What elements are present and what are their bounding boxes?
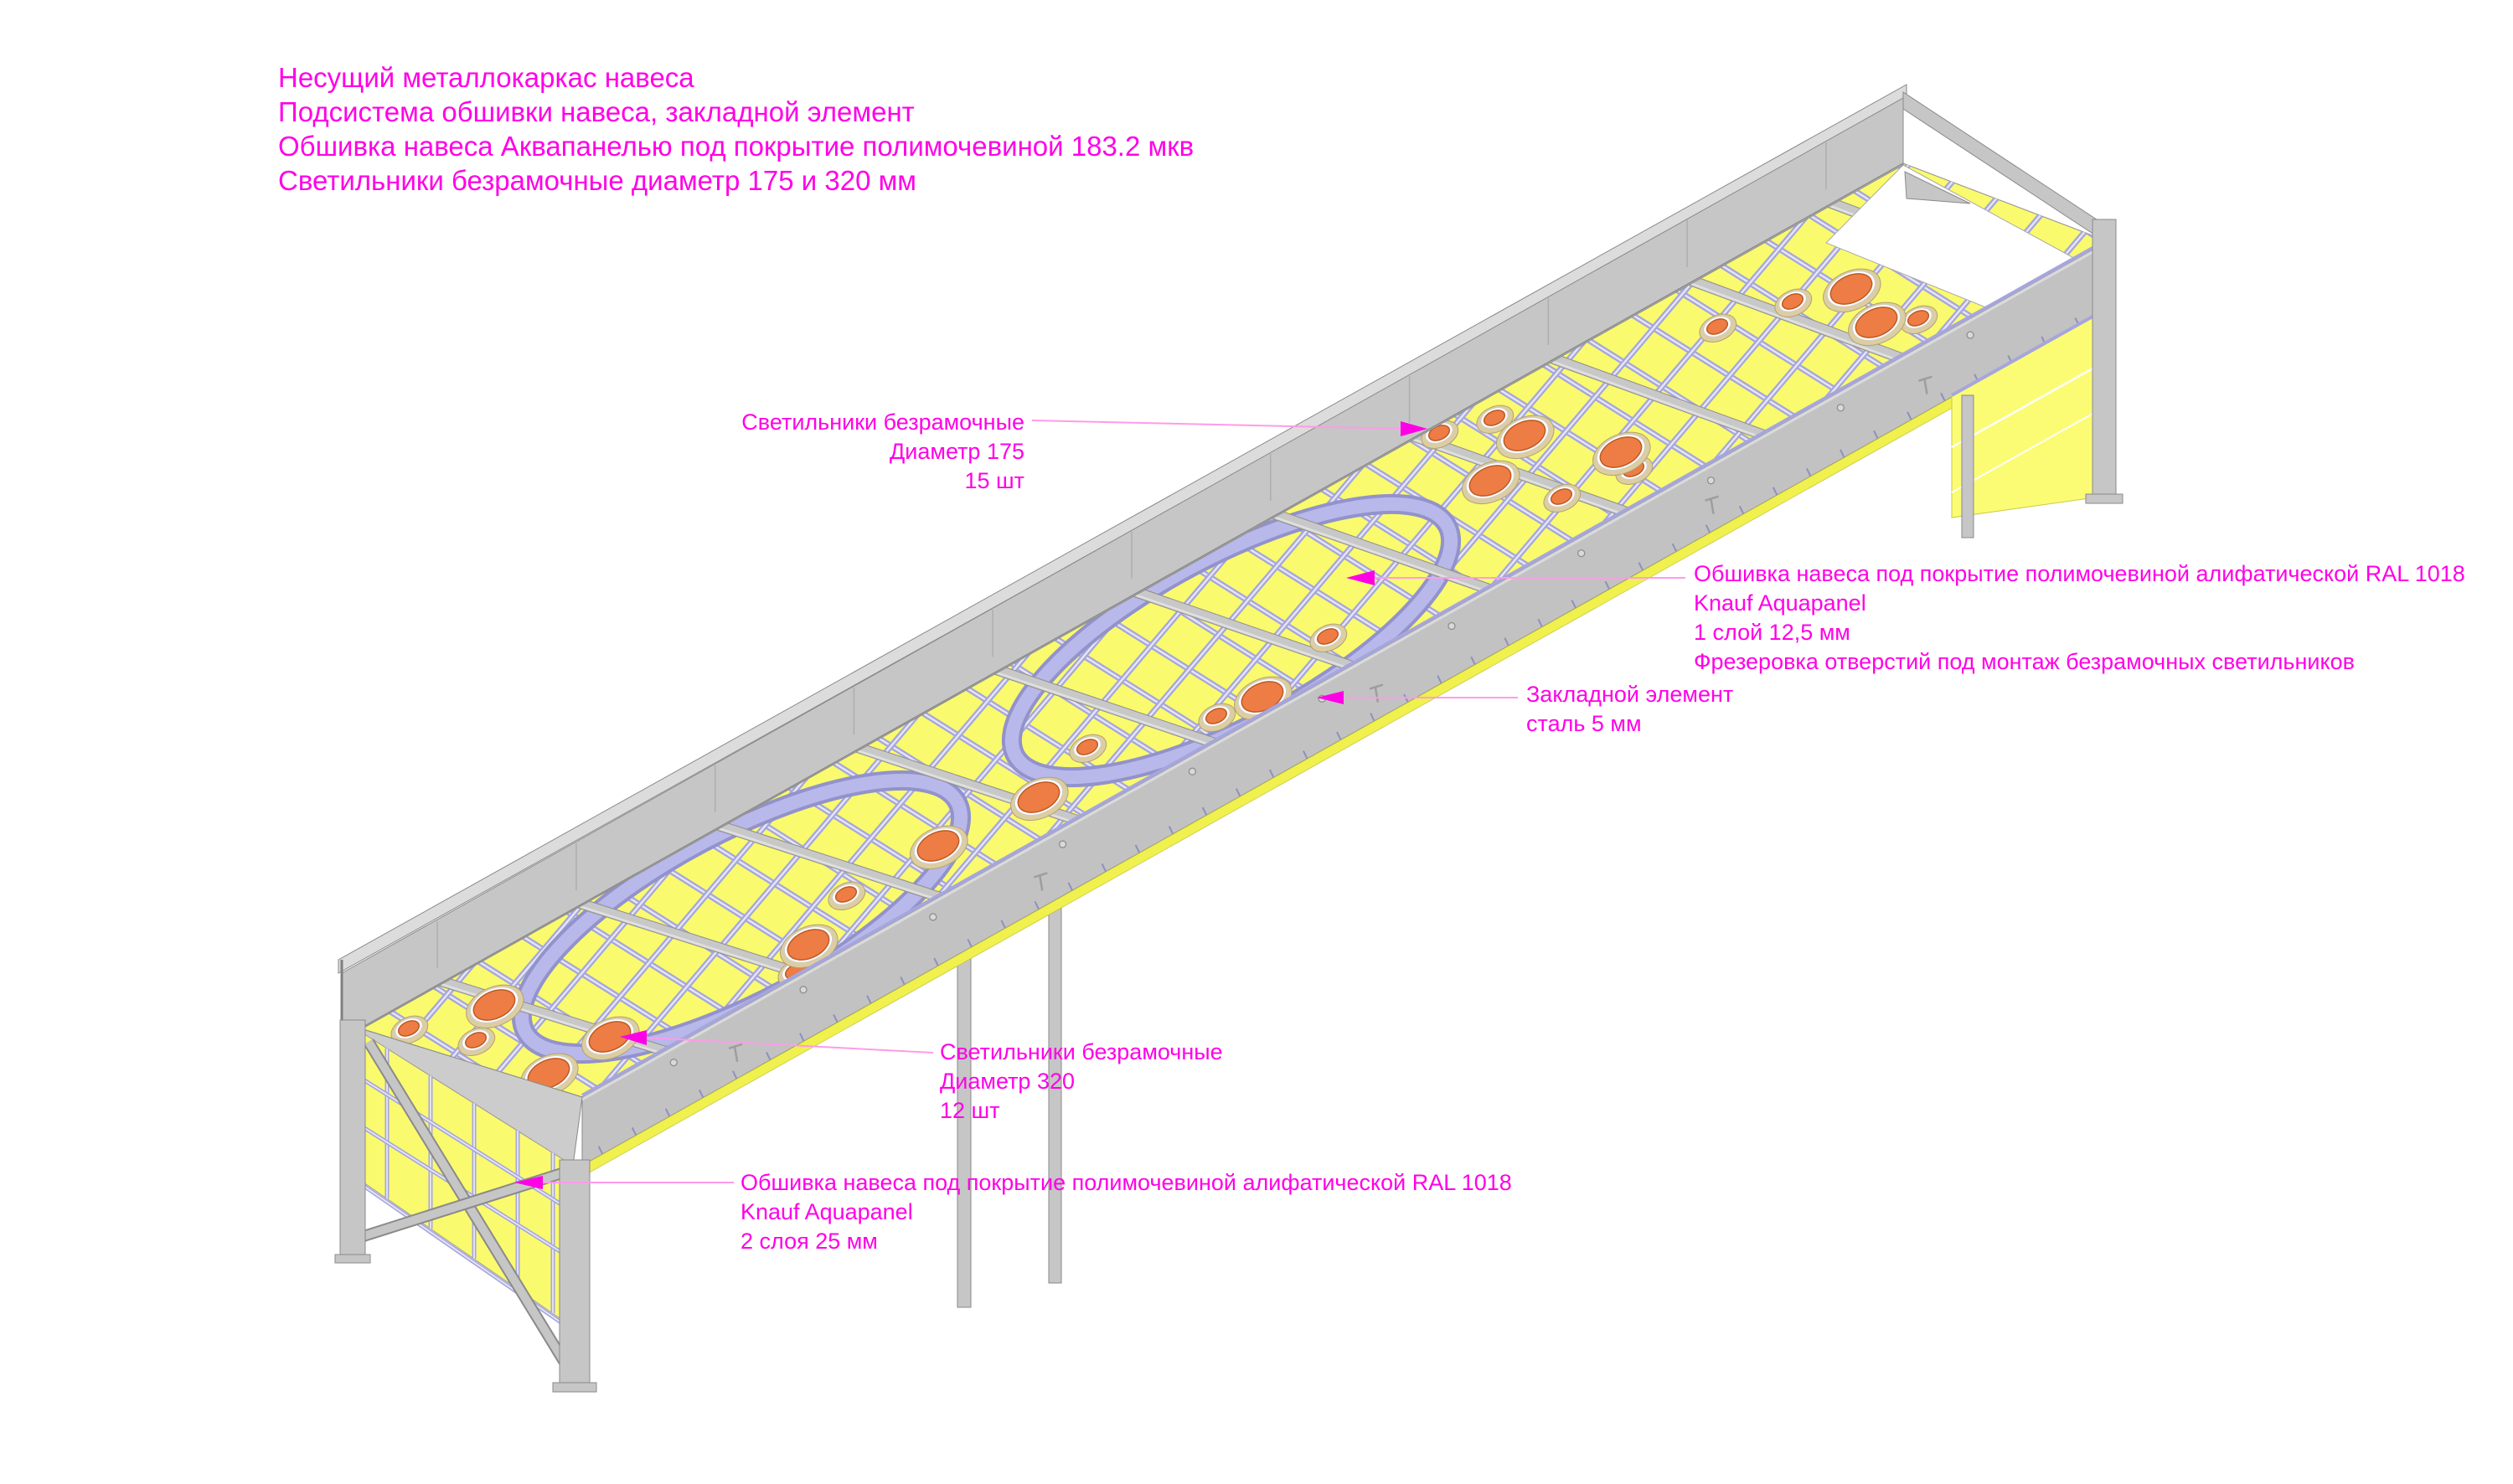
label-cladding-soffit-line3: 1 слой 12,5 мм [1694,618,2465,647]
label-embed-plate-line1: Закладной элемент [1526,680,1733,709]
label-embed-plate-line2: сталь 5 мм [1526,709,1733,739]
label-lights-320-line3: 12 шт [940,1096,1223,1126]
label-cladding-end-line3: 2 слоя 25 мм [740,1227,1512,1256]
label-embed-plate: Закладной элемент сталь 5 мм [1526,680,1733,739]
label-cladding-end-line1: Обшивка навеса под покрытие полимочевино… [740,1168,1512,1198]
label-lights-175-line2: Диаметр 175 [741,437,1024,466]
label-lights-175-line1: Светильники безрамочные [741,408,1024,437]
label-lights-175: Светильники безрамочные Диаметр 175 15 ш… [741,408,1024,496]
label-lights-175-line3: 15 шт [741,466,1024,496]
label-lights-320-line2: Диаметр 320 [940,1067,1223,1096]
label-cladding-soffit-line2: Knauf Aquapanel [1694,589,2465,618]
title-line-2: Подсистема обшивки навеса, закладной эле… [278,95,1194,129]
label-lights-320-line1: Светильники безрамочные [940,1038,1223,1067]
label-lights-320: Светильники безрамочные Диаметр 320 12 ш… [940,1038,1223,1126]
label-cladding-soffit-line1: Обшивка навеса под покрытие полимочевино… [1694,559,2465,589]
label-cladding-end-line2: Knauf Aquapanel [740,1198,1512,1227]
canopy-drawing-page: Несущий металлокаркас навеса Подсистема … [0,0,2513,1484]
title-line-3: Обшивка навеса Аквапанелью под покрытие … [278,129,1194,163]
title-line-4: Светильники безрамочные диаметр 175 и 32… [278,163,1194,198]
label-cladding-soffit: Обшивка навеса под покрытие полимочевино… [1694,559,2465,677]
title-block: Несущий металлокаркас навеса Подсистема … [278,60,1194,198]
title-line-1: Несущий металлокаркас навеса [278,60,1194,95]
drawing-svg [0,0,2513,1484]
label-cladding-end: Обшивка навеса под покрытие полимочевино… [740,1168,1512,1256]
label-cladding-soffit-line4: Фрезеровка отверстий под монтаж безрамоч… [1694,647,2465,677]
